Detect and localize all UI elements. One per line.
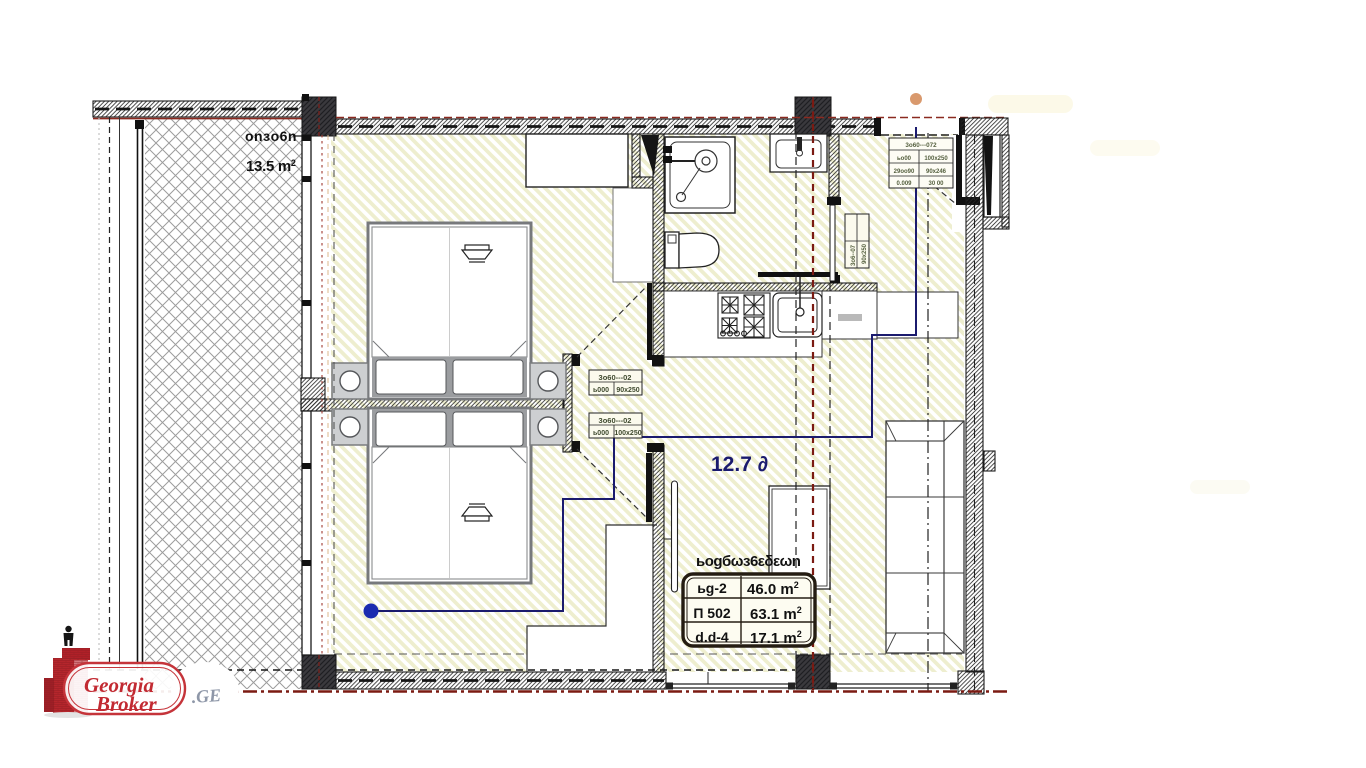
svg-text:3о60---02: 3о60---02 <box>599 373 632 382</box>
svg-text:29оо90: 29оо90 <box>894 169 915 175</box>
svg-text:d.d-4: d.d-4 <box>695 629 729 645</box>
svg-text:90x250: 90x250 <box>616 387 639 394</box>
svg-text:ьо00: ьо00 <box>897 156 912 162</box>
svg-text:ьogбωз6εδεωn: ьogбωз6εδεωn <box>696 553 801 570</box>
svg-text:63.1 m2: 63.1 m2 <box>750 605 802 623</box>
svg-text:onзo6n: onзo6n <box>245 128 297 144</box>
svg-text:100x250: 100x250 <box>614 430 641 437</box>
svg-text:.GE: .GE <box>191 685 222 707</box>
svg-text:3о60---072: 3о60---072 <box>905 142 937 149</box>
svg-text:ьg-2: ьg-2 <box>697 580 727 596</box>
svg-text:17.1 m2: 17.1 m2 <box>750 629 802 647</box>
svg-text:ь000: ь000 <box>593 430 609 437</box>
svg-text:ь000: ь000 <box>593 387 609 394</box>
svg-text:П 502: П 502 <box>693 605 731 621</box>
svg-text:12.7 ∂: 12.7 ∂ <box>711 453 768 476</box>
svg-text:46.0 m2: 46.0 m2 <box>747 580 799 598</box>
svg-text:Broker: Broker <box>95 692 158 716</box>
svg-text:13.5 m2: 13.5 m2 <box>246 158 296 175</box>
svg-text:3о6--07: 3о6--07 <box>851 244 857 266</box>
svg-text:30 00: 30 00 <box>928 181 944 187</box>
svg-text:100x250: 100x250 <box>924 156 948 162</box>
svg-text:0.009: 0.009 <box>896 181 912 187</box>
svg-text:3о60---02: 3о60---02 <box>599 416 632 425</box>
svg-text:90x250: 90x250 <box>862 243 868 264</box>
svg-text:90x246: 90x246 <box>926 169 947 175</box>
